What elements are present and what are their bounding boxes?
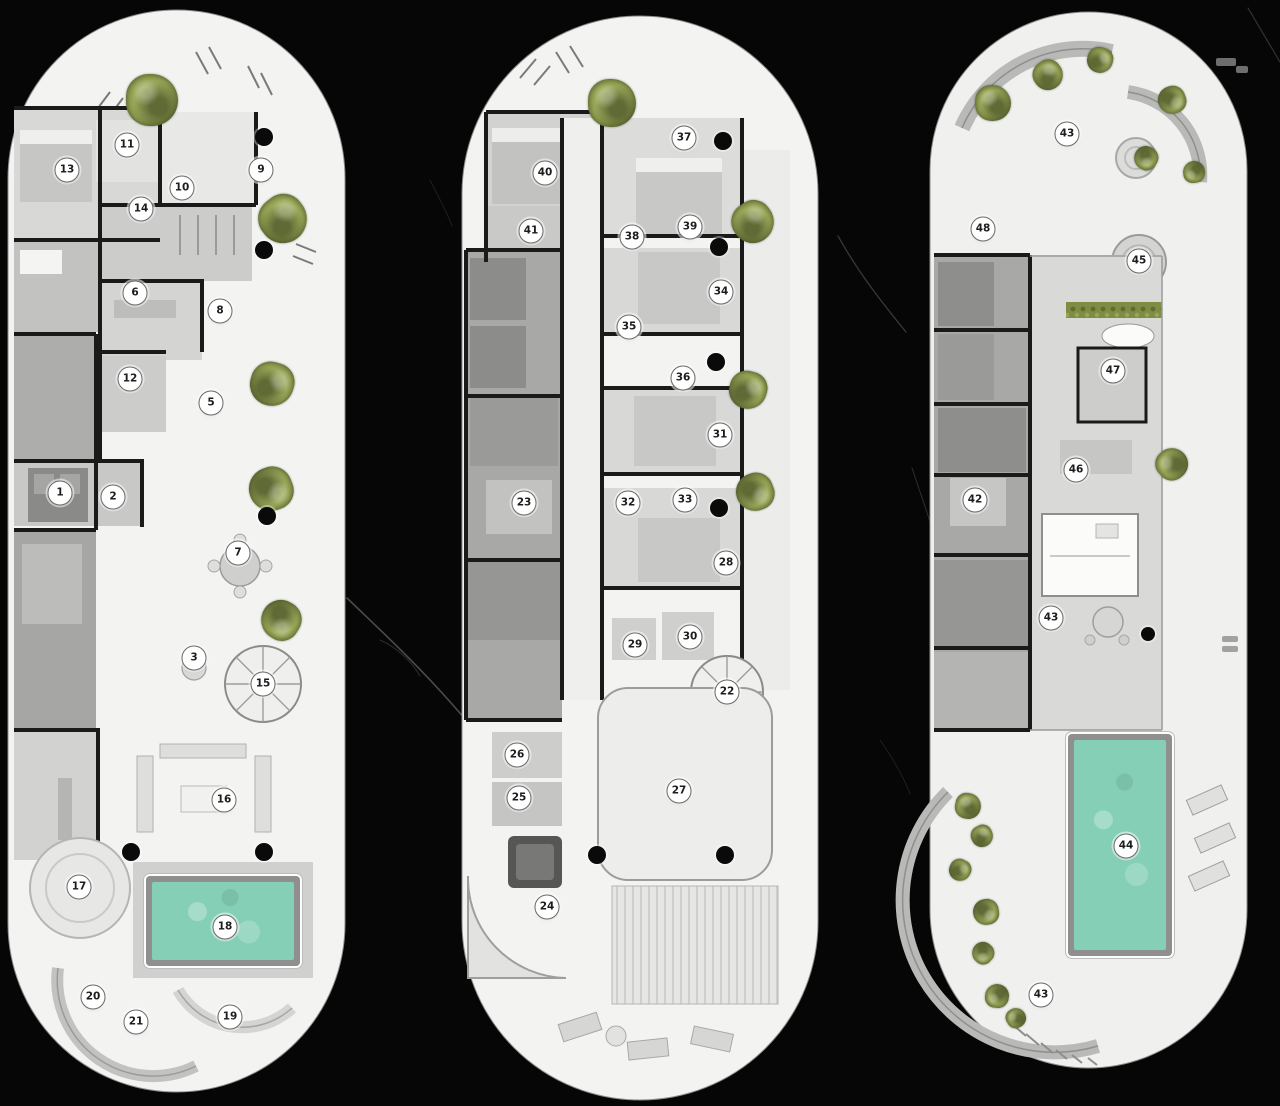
unit-marker-38: 38 [620, 225, 645, 250]
overlay-layer: 1113910146812512731516171820192137403941… [0, 0, 1280, 1106]
unit-marker-32: 32 [616, 491, 641, 516]
plant [984, 983, 1010, 1009]
unit-marker-10: 10 [170, 176, 195, 201]
unit-marker-25: 25 [507, 786, 532, 811]
plant [126, 74, 178, 126]
unit-marker-1: 1 [48, 481, 73, 506]
unit-marker-34: 34 [709, 280, 734, 305]
unit-marker-20: 20 [81, 985, 106, 1010]
plant [730, 467, 779, 516]
plant [1149, 441, 1194, 486]
plant [1182, 160, 1206, 184]
unit-marker-14: 14 [129, 197, 154, 222]
plant [588, 79, 636, 127]
unit-marker-48: 48 [971, 217, 996, 242]
column-dot [714, 132, 732, 150]
unit-marker-12: 12 [118, 367, 143, 392]
floorplan-canvas: 1113910146812512731516171820192137403941… [0, 0, 1280, 1106]
unit-marker-27: 27 [667, 779, 692, 804]
unit-marker-16: 16 [212, 788, 237, 813]
plant [1154, 82, 1190, 118]
column-dot [707, 353, 725, 371]
unit-marker-22: 22 [715, 680, 740, 705]
unit-marker-30: 30 [678, 625, 703, 650]
plant [253, 592, 308, 647]
column-dot [716, 846, 734, 864]
unit-marker-28: 28 [714, 551, 739, 576]
plant [945, 855, 975, 885]
column-dot [255, 241, 273, 259]
unit-marker-31: 31 [708, 423, 733, 448]
unit-marker-35: 35 [617, 315, 642, 340]
plant [967, 821, 996, 850]
unit-marker-18: 18 [213, 915, 238, 940]
unit-marker-13: 13 [55, 158, 80, 183]
column-dot [122, 843, 140, 861]
unit-marker-41: 41 [519, 219, 544, 244]
unit-marker-33: 33 [673, 488, 698, 513]
unit-marker-45: 45 [1127, 249, 1152, 274]
column-dot [588, 846, 606, 864]
unit-marker-39: 39 [678, 215, 703, 240]
unit-marker-24: 24 [535, 895, 560, 920]
unit-marker-23: 23 [512, 491, 537, 516]
plant [724, 193, 783, 252]
unit-marker-46: 46 [1064, 458, 1089, 483]
plant [971, 897, 1001, 927]
plant [953, 791, 983, 821]
plant [245, 357, 299, 411]
column-dot [258, 507, 276, 525]
unit-marker-37: 37 [672, 126, 697, 151]
column-dot [710, 499, 728, 517]
unit-marker-40: 40 [533, 161, 558, 186]
unit-marker-5: 5 [199, 391, 224, 416]
unit-marker-7: 7 [226, 541, 251, 566]
unit-marker-21: 21 [124, 1010, 149, 1035]
column-dot [255, 128, 273, 146]
plant [1002, 1004, 1029, 1031]
unit-marker-44: 44 [1114, 834, 1139, 859]
unit-marker-42: 42 [963, 488, 988, 513]
unit-marker-47: 47 [1101, 359, 1126, 384]
column-dot [710, 238, 728, 256]
plant [975, 85, 1011, 121]
unit-marker-11: 11 [115, 133, 140, 158]
plant [1027, 54, 1069, 96]
unit-marker-19: 19 [218, 1005, 243, 1030]
unit-marker-3: 3 [182, 646, 207, 671]
plant [724, 366, 771, 413]
plant [967, 937, 998, 968]
unit-marker-26: 26 [505, 743, 530, 768]
plant [1084, 44, 1116, 76]
unit-marker-29: 29 [623, 633, 648, 658]
column-dot [1141, 627, 1155, 641]
unit-marker-9: 9 [249, 158, 274, 183]
unit-marker-43: 43 [1055, 122, 1080, 147]
unit-marker-43: 43 [1039, 606, 1064, 631]
unit-marker-2: 2 [101, 485, 126, 510]
unit-marker-43: 43 [1029, 983, 1054, 1008]
unit-marker-6: 6 [123, 281, 148, 306]
plant [1129, 141, 1162, 174]
column-dot [255, 843, 273, 861]
unit-marker-15: 15 [251, 672, 276, 697]
unit-marker-17: 17 [67, 875, 92, 900]
unit-marker-8: 8 [208, 299, 233, 324]
unit-marker-36: 36 [671, 366, 696, 391]
